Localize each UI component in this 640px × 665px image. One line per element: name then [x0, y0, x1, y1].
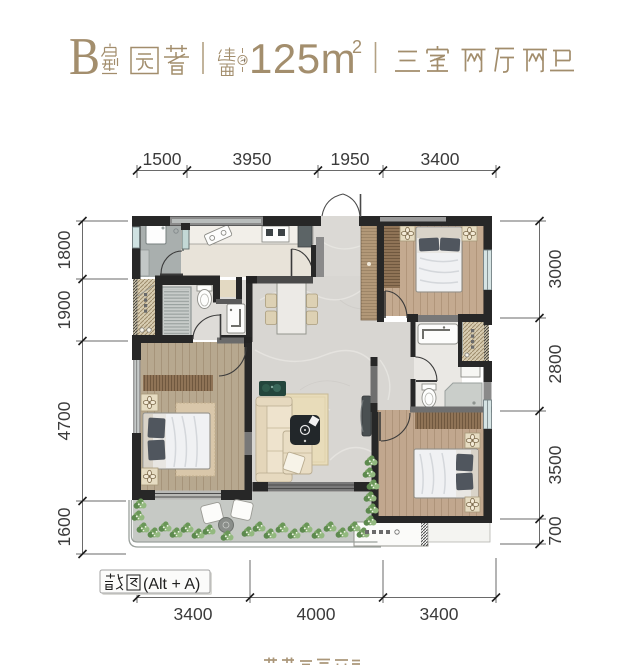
svg-text:3400: 3400 [420, 604, 459, 624]
svg-text:2: 2 [352, 37, 362, 57]
svg-text:3500: 3500 [545, 445, 565, 484]
svg-text:1500: 1500 [143, 149, 182, 169]
svg-text:3400: 3400 [174, 604, 213, 624]
svg-text:3400: 3400 [421, 149, 460, 169]
svg-text:(Alt + A): (Alt + A) [143, 576, 200, 593]
svg-text:2800: 2800 [545, 344, 565, 383]
svg-text:3000: 3000 [545, 249, 565, 288]
svg-text:125m: 125m [249, 35, 356, 82]
svg-text:4000: 4000 [297, 604, 336, 624]
svg-text:1950: 1950 [331, 149, 370, 169]
svg-text:1900: 1900 [54, 290, 74, 329]
svg-text:B: B [69, 28, 100, 86]
svg-text:4700: 4700 [54, 401, 74, 440]
svg-text:1600: 1600 [54, 507, 74, 546]
svg-text:3950: 3950 [233, 149, 272, 169]
svg-text:700: 700 [545, 516, 565, 545]
svg-text:1800: 1800 [54, 230, 74, 269]
